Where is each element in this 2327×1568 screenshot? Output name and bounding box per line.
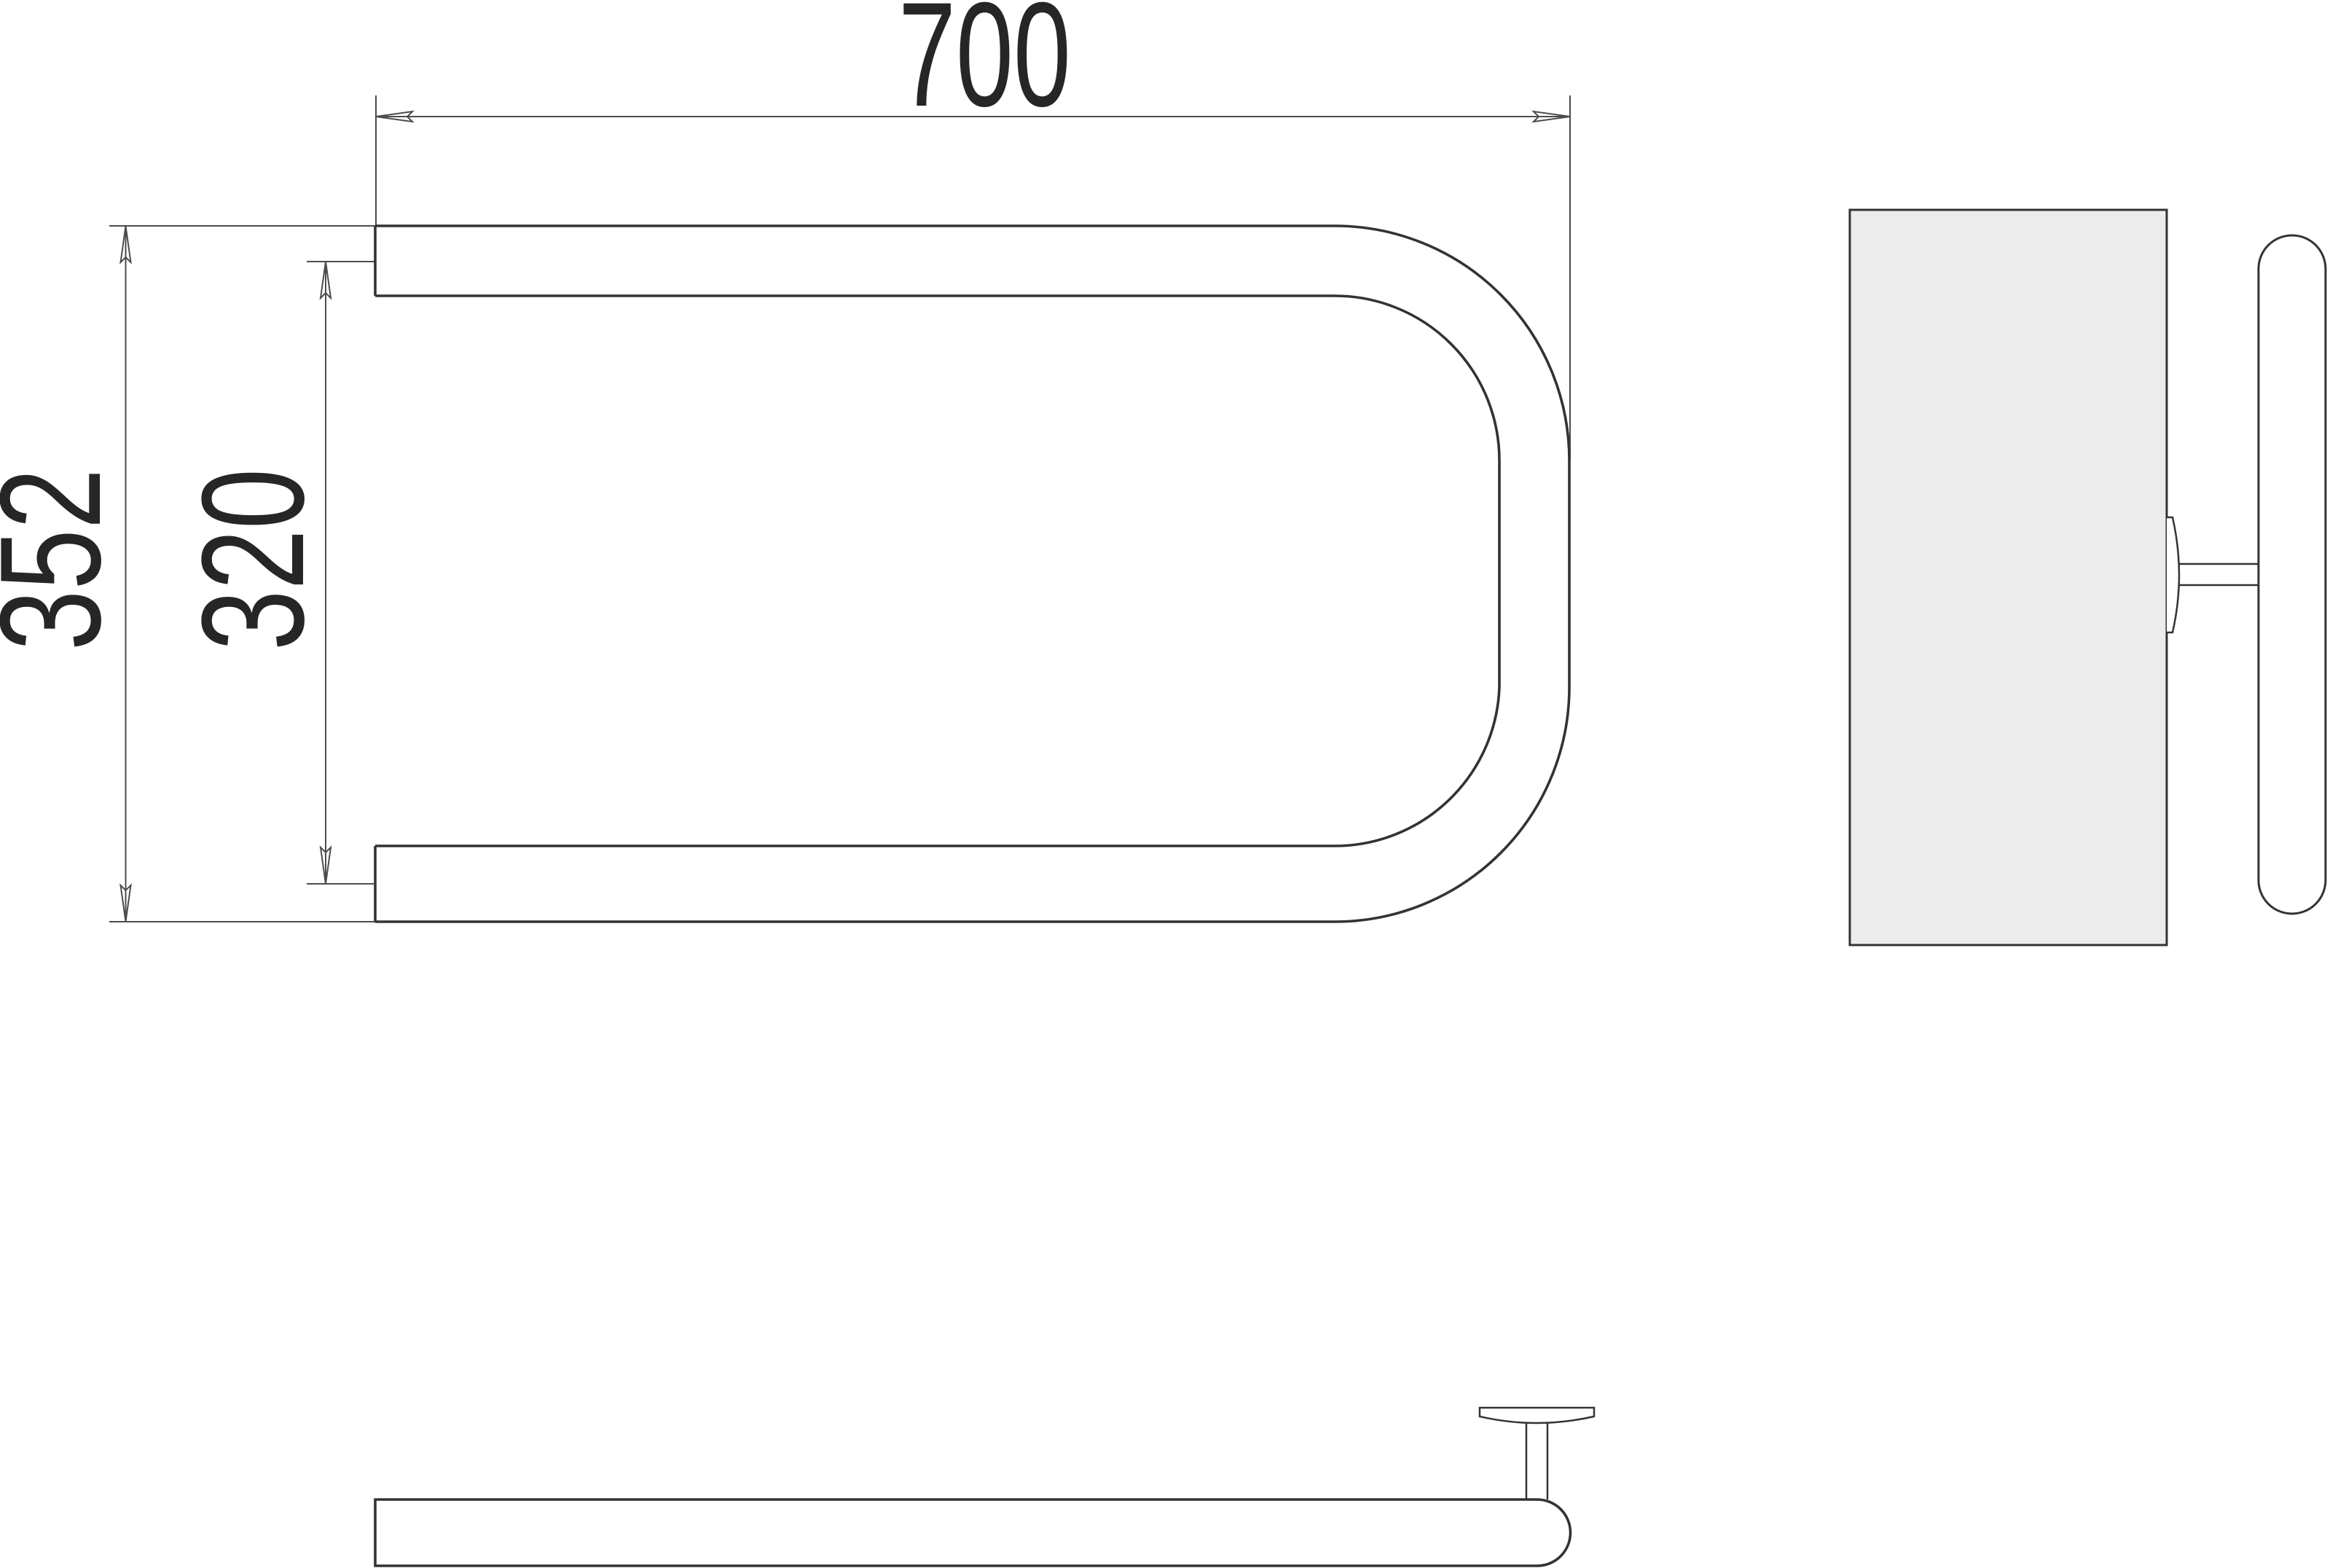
svg-text:320: 320 (172, 469, 334, 651)
svg-text:352: 352 (0, 469, 131, 651)
